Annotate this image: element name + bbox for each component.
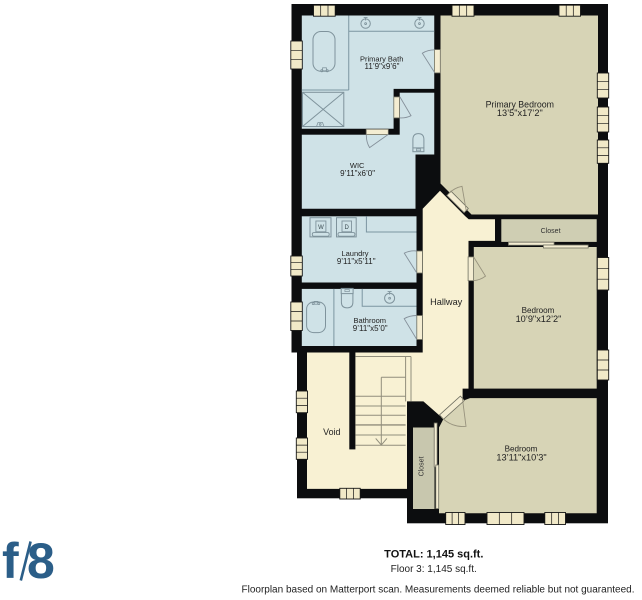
- svg-text:13’11"x10’3": 13’11"x10’3": [496, 453, 546, 463]
- svg-text:Floor 3: 1,145 sq.ft.: Floor 3: 1,145 sq.ft.: [391, 564, 477, 575]
- svg-text:13’5"x17’2": 13’5"x17’2": [497, 108, 543, 118]
- svg-text:f: f: [2, 533, 19, 589]
- svg-text:Void: Void: [323, 427, 340, 437]
- svg-text:TOTAL: 1,145 sq.ft.: TOTAL: 1,145 sq.ft.: [384, 549, 483, 561]
- svg-text:Floorplan based on Matterport: Floorplan based on Matterport scan. Meas…: [241, 585, 634, 596]
- svg-text:11’9"x9’6": 11’9"x9’6": [365, 62, 400, 71]
- svg-text:W: W: [318, 225, 324, 231]
- svg-text:Closet: Closet: [419, 457, 426, 477]
- svg-text:9’11"x5’11": 9’11"x5’11": [337, 257, 376, 266]
- svg-text:D: D: [345, 225, 350, 231]
- svg-text:9’11"x6’0": 9’11"x6’0": [340, 169, 375, 178]
- svg-text:9’11"x5’0": 9’11"x5’0": [353, 324, 388, 333]
- svg-text:Hallway: Hallway: [430, 297, 463, 307]
- svg-text:Closet: Closet: [541, 228, 561, 235]
- svg-text:8: 8: [27, 533, 55, 589]
- svg-text:10’9"x12’2": 10’9"x12’2": [516, 314, 562, 324]
